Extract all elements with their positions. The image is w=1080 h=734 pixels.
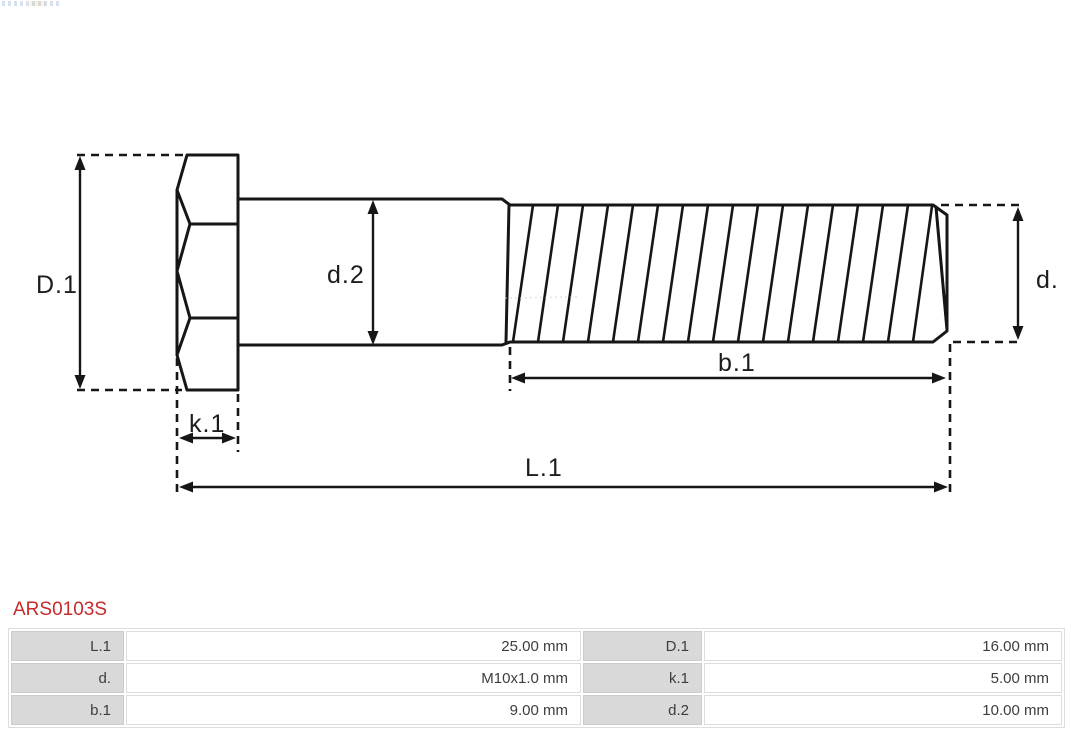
spec-label: d.2 xyxy=(583,695,702,725)
dim-label-D1: D.1 xyxy=(36,271,78,299)
dim-d2 xyxy=(368,200,379,345)
bolt-technical-drawing: D.1 d.2 d. b.1 k.1 xyxy=(0,0,1080,575)
spec-label: L.1 xyxy=(11,631,124,661)
page: D.1 d.2 d. b.1 k.1 xyxy=(0,0,1080,734)
thread-end-inner-edge xyxy=(936,207,947,330)
spec-row: b.1 9.00 mm d.2 10.00 mm xyxy=(11,695,1062,725)
part-number-link[interactable]: ARS0103S xyxy=(13,599,107,621)
spec-value: 10.00 mm xyxy=(704,695,1062,725)
dim-label-L1: L.1 xyxy=(525,454,563,482)
spec-value: M10x1.0 mm xyxy=(126,663,581,693)
bolt-outline xyxy=(177,155,947,390)
hex-head-chevrons xyxy=(177,190,190,355)
spec-row: L.1 25.00 mm D.1 16.00 mm xyxy=(11,631,1062,661)
dim-label-d2: d.2 xyxy=(327,261,365,289)
dim-label-d: d. xyxy=(1036,266,1059,294)
spec-value: 16.00 mm xyxy=(704,631,1062,661)
spec-value: 9.00 mm xyxy=(126,695,581,725)
dim-label-b1: b.1 xyxy=(718,349,756,377)
hex-head-outline xyxy=(177,155,238,390)
thread-start-edge xyxy=(506,205,509,342)
spec-row: d. M10x1.0 mm k.1 5.00 mm xyxy=(11,663,1062,693)
spec-label: D.1 xyxy=(583,631,702,661)
spec-value: 25.00 mm xyxy=(126,631,581,661)
spec-label: k.1 xyxy=(583,663,702,693)
spec-table: L.1 25.00 mm D.1 16.00 mm d. M10x1.0 mm … xyxy=(8,628,1065,728)
dim-label-k1: k.1 xyxy=(189,410,225,438)
dim-L1 xyxy=(179,482,948,493)
dim-d xyxy=(1013,207,1024,340)
spec-label: d. xyxy=(11,663,124,693)
spec-value: 5.00 mm xyxy=(704,663,1062,693)
thread-hatch-lines xyxy=(513,205,932,342)
spec-label: b.1 xyxy=(11,695,124,725)
